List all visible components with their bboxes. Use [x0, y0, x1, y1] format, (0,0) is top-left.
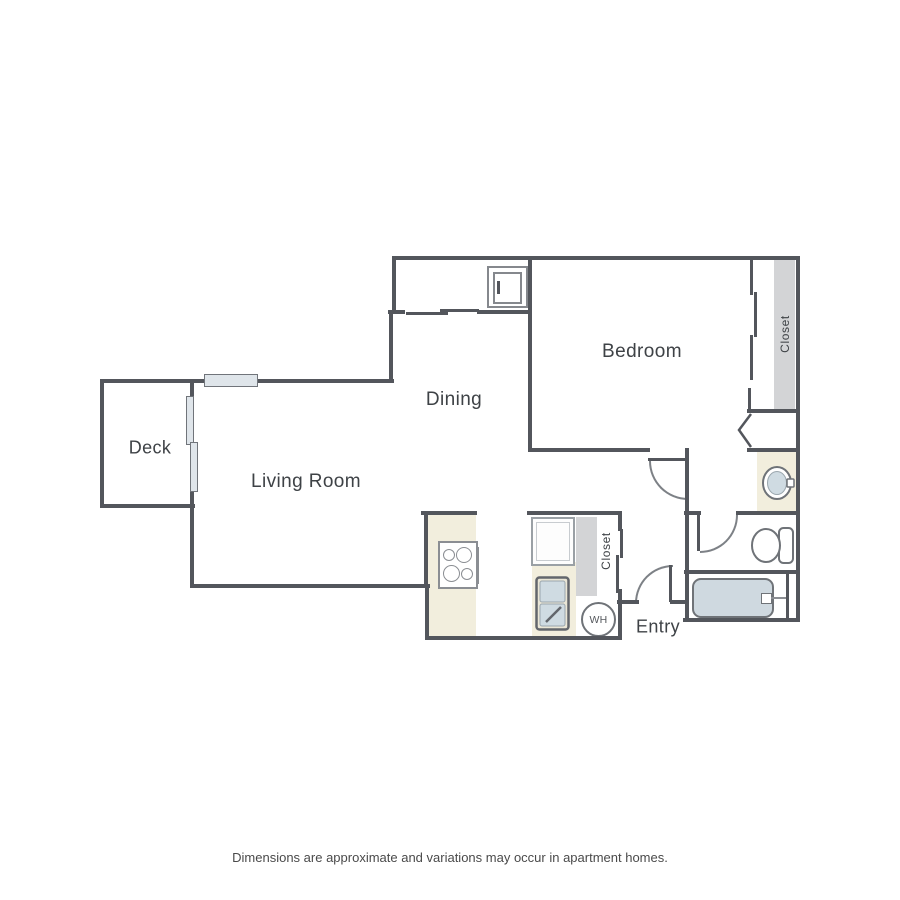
washer-dryer-handle	[497, 281, 500, 294]
wall-segment	[736, 511, 800, 515]
wall-segment	[684, 570, 800, 574]
kitchen-sink	[535, 576, 570, 631]
wall-segment	[528, 256, 532, 452]
refrigerator	[531, 517, 575, 566]
wall-segment	[683, 618, 800, 622]
wall-segment	[477, 310, 531, 314]
wall-segment	[421, 511, 477, 515]
bathroom-door-arc	[700, 515, 738, 553]
wall-segment	[425, 636, 622, 640]
wall-segment	[190, 490, 194, 588]
room-label-dining: Dining	[426, 389, 482, 411]
room-label-living-room: Living Room	[251, 471, 361, 493]
wall-segment	[424, 511, 428, 588]
entry-door-leaf	[669, 565, 672, 602]
wall-segment	[389, 310, 393, 383]
wall-segment	[527, 511, 622, 515]
water-heater: WH	[581, 602, 616, 637]
window	[204, 374, 258, 387]
bifold-door	[737, 413, 754, 448]
wall-segment	[190, 584, 430, 588]
bedroom-door-arc	[649, 461, 688, 500]
bypass-door-panel	[754, 292, 757, 337]
floor-plan-page: WH	[0, 0, 900, 900]
bypass-door-panel	[616, 555, 619, 593]
wall-segment	[392, 256, 396, 314]
wall-segment	[528, 448, 650, 452]
entry-closet-shelf	[576, 517, 597, 596]
wall-segment	[425, 584, 429, 640]
closet-label-entry: Closet	[599, 532, 613, 570]
wall-segment	[618, 600, 622, 640]
bathtub-faucet-line	[771, 597, 787, 599]
bypass-door-panel	[440, 309, 479, 312]
wall-segment	[685, 448, 689, 622]
stove-burner	[456, 547, 472, 563]
room-label-deck: Deck	[129, 438, 172, 459]
stove-burner	[443, 565, 460, 582]
bypass-door-panel	[620, 529, 623, 558]
water-heater-label: WH	[589, 614, 607, 626]
sliding-door-panel	[190, 442, 198, 492]
toilet	[750, 526, 795, 565]
stove-burner	[461, 568, 473, 580]
bathroom-vanity-sink	[761, 465, 797, 502]
bathroom-door-leaf	[697, 514, 700, 551]
bypass-door-panel	[748, 388, 751, 411]
wall-segment	[100, 504, 195, 508]
room-label-bedroom: Bedroom	[602, 341, 682, 363]
wall-segment	[392, 256, 800, 260]
wall-segment	[747, 409, 800, 413]
bypass-door-panel	[750, 335, 753, 380]
wall-segment	[100, 379, 104, 508]
washer-dryer	[487, 266, 528, 308]
closet-label-bedroom: Closet	[778, 315, 792, 353]
bedroom-door-leaf	[648, 458, 687, 461]
bypass-door-panel	[406, 312, 448, 315]
entry-door-arc	[635, 565, 673, 603]
wall-segment	[796, 256, 800, 622]
disclaimer-text: Dimensions are approximate and variation…	[0, 850, 900, 865]
wall-segment	[747, 448, 800, 452]
stove-handle	[476, 547, 479, 584]
wall-segment	[786, 574, 789, 620]
room-label-entry: Entry	[636, 617, 680, 638]
sliding-door-panel	[186, 396, 194, 445]
floor-plan: WH	[0, 0, 900, 900]
bypass-door-panel	[750, 260, 753, 295]
stove-burner	[443, 549, 455, 561]
